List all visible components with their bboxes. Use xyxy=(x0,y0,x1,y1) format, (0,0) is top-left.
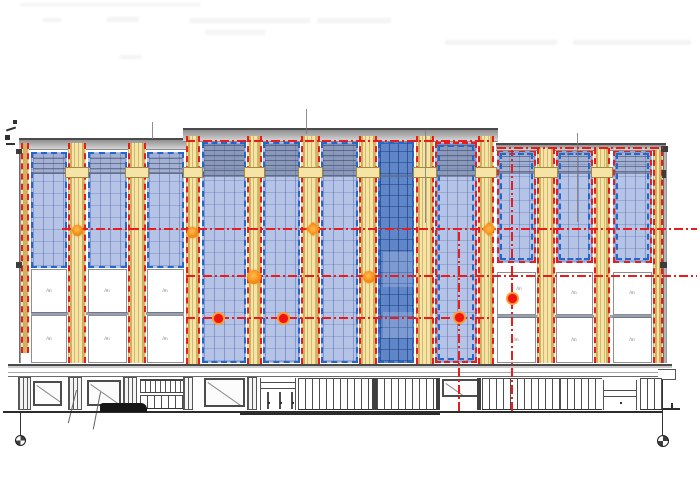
axis-dot xyxy=(506,292,519,305)
door-handle-dot xyxy=(292,402,294,404)
annotation-mark xyxy=(6,143,15,145)
ground-line xyxy=(671,403,673,410)
column-strip-cap xyxy=(183,167,203,178)
door-transom-line xyxy=(261,382,295,383)
column-strip xyxy=(537,148,555,363)
storefront-fascia-line xyxy=(8,372,672,373)
louver-band xyxy=(149,154,182,174)
panel-mark: /m xyxy=(629,338,634,343)
storefront-louvers xyxy=(298,378,372,410)
column-strip xyxy=(594,148,610,363)
panel-mark: /m xyxy=(162,289,167,294)
storefront-pilaster xyxy=(183,377,193,410)
facade-edge xyxy=(663,151,667,363)
floor-mullion-line xyxy=(31,312,184,315)
column-strip xyxy=(21,143,29,353)
door-transom-line xyxy=(604,390,636,391)
leader-line xyxy=(152,122,153,139)
glass-reflection xyxy=(383,312,413,338)
panel-mark: /m xyxy=(629,291,634,296)
ghost-text-smudge xyxy=(190,18,310,23)
benchmark-marker xyxy=(657,435,669,447)
louver-band xyxy=(90,154,125,174)
storefront-louvers xyxy=(482,378,560,410)
axis-dot xyxy=(277,312,290,325)
axis-line-horizontal xyxy=(62,228,697,230)
storefront-louvers xyxy=(377,378,438,410)
benchmark-stem xyxy=(662,380,663,436)
storefront-louvers xyxy=(640,378,662,410)
benchmark-marker xyxy=(15,435,26,446)
ghost-text-smudge xyxy=(205,30,265,35)
panel-mark: /m xyxy=(516,287,521,292)
door-mullion xyxy=(267,392,269,409)
annotation-mark xyxy=(5,135,10,140)
louver-band xyxy=(323,144,356,176)
ghost-text-smudge xyxy=(445,40,557,45)
ground-line xyxy=(240,412,440,415)
door-mullion xyxy=(291,392,293,409)
panel-mark: /m xyxy=(46,289,51,294)
storefront-door xyxy=(603,380,637,410)
edge-anchor-mark xyxy=(16,149,22,154)
glazing-border xyxy=(616,153,649,260)
glass-reflection xyxy=(383,252,413,287)
edge-anchor-mark xyxy=(16,262,22,268)
panel-mark: /m xyxy=(571,338,576,343)
storefront-window xyxy=(204,378,245,407)
storefront-louvers xyxy=(560,378,602,410)
annotation-mark xyxy=(6,127,16,132)
axis-dot xyxy=(363,271,375,283)
ghost-text-smudge xyxy=(20,3,200,6)
storefront-pilaster xyxy=(247,377,257,410)
panel-mark: /m xyxy=(104,337,109,342)
parked-object xyxy=(100,403,147,412)
glazing-panel xyxy=(88,152,127,268)
elevation-drawing: /m/m/m/m/m/m/m/m/m/m/m/m xyxy=(0,0,700,499)
storefront-railing xyxy=(140,379,183,393)
column-strip-cap xyxy=(244,167,265,178)
roof-parapet-band xyxy=(19,138,186,150)
column-strip-cap xyxy=(65,167,89,178)
glazing-border xyxy=(559,153,590,260)
storefront-post xyxy=(436,378,440,410)
door-handle-dot xyxy=(280,402,282,404)
floor-mullion-line xyxy=(31,172,184,174)
leader-line xyxy=(425,130,426,223)
storefront-post xyxy=(477,378,481,410)
door-transom-line xyxy=(604,396,636,397)
panel-mark: /m xyxy=(104,289,109,294)
ghost-text-smudge xyxy=(43,18,61,22)
edge-anchor-mark xyxy=(660,262,667,268)
axis-line-horizontal xyxy=(497,147,663,149)
axis-line-horizontal xyxy=(186,140,494,142)
column-strip-cap xyxy=(475,167,497,178)
glazing-panel xyxy=(556,150,593,263)
louver-band xyxy=(204,144,244,176)
ghost-text-smudge xyxy=(120,55,142,59)
axis-line-horizontal xyxy=(186,317,494,319)
panel-mark: /m xyxy=(513,338,518,343)
column-strip xyxy=(653,150,663,363)
door-mullion xyxy=(279,392,281,409)
storefront-window xyxy=(442,379,480,397)
annotation-mark xyxy=(13,120,17,124)
axis-line-horizontal xyxy=(186,275,697,277)
glazing-panel xyxy=(613,150,652,263)
floor-mullion-line xyxy=(497,172,652,174)
door-handle-dot xyxy=(620,402,622,404)
floor-mullion-line xyxy=(497,315,652,318)
axis-dot xyxy=(212,312,225,325)
glass-reflection-line xyxy=(207,382,245,407)
panel-mark: /m xyxy=(46,337,51,342)
glazing-panel xyxy=(497,150,536,263)
panel-mark: /m xyxy=(571,291,576,296)
axis-dot xyxy=(187,227,198,238)
glazing-panel xyxy=(31,152,67,268)
storefront-fascia xyxy=(8,364,672,377)
column-strip-cap xyxy=(356,167,380,178)
door-handle-dot xyxy=(268,402,270,404)
ghost-text-smudge xyxy=(107,17,139,22)
benchmark-stem xyxy=(20,413,21,435)
column-strip-cap xyxy=(591,167,613,178)
axis-line-vertical xyxy=(511,150,513,411)
column-strip-cap xyxy=(298,167,323,178)
axis-dot xyxy=(247,270,261,284)
glass-reflection-line xyxy=(445,383,480,397)
glass-reflection-line xyxy=(36,385,62,406)
storefront-door xyxy=(260,378,296,410)
edge-anchor-mark xyxy=(662,170,666,178)
panel-mark: /m xyxy=(162,337,167,342)
ghost-text-smudge xyxy=(573,40,691,45)
axis-dot xyxy=(72,225,83,236)
column-strip-cap xyxy=(125,167,149,178)
glazing-border xyxy=(438,145,474,360)
leader-line xyxy=(306,109,307,134)
louver-band xyxy=(33,154,65,174)
column-strip-cap xyxy=(534,167,558,178)
storefront-window xyxy=(33,381,62,406)
door-transom-line xyxy=(261,388,295,389)
ghost-text-smudge xyxy=(317,18,391,23)
axis-dot xyxy=(453,311,466,324)
glazing-panel xyxy=(147,152,184,268)
louver-band xyxy=(265,144,298,176)
glazing-border xyxy=(500,153,533,260)
storefront-pilaster xyxy=(18,377,31,410)
storefront-post xyxy=(372,378,377,410)
